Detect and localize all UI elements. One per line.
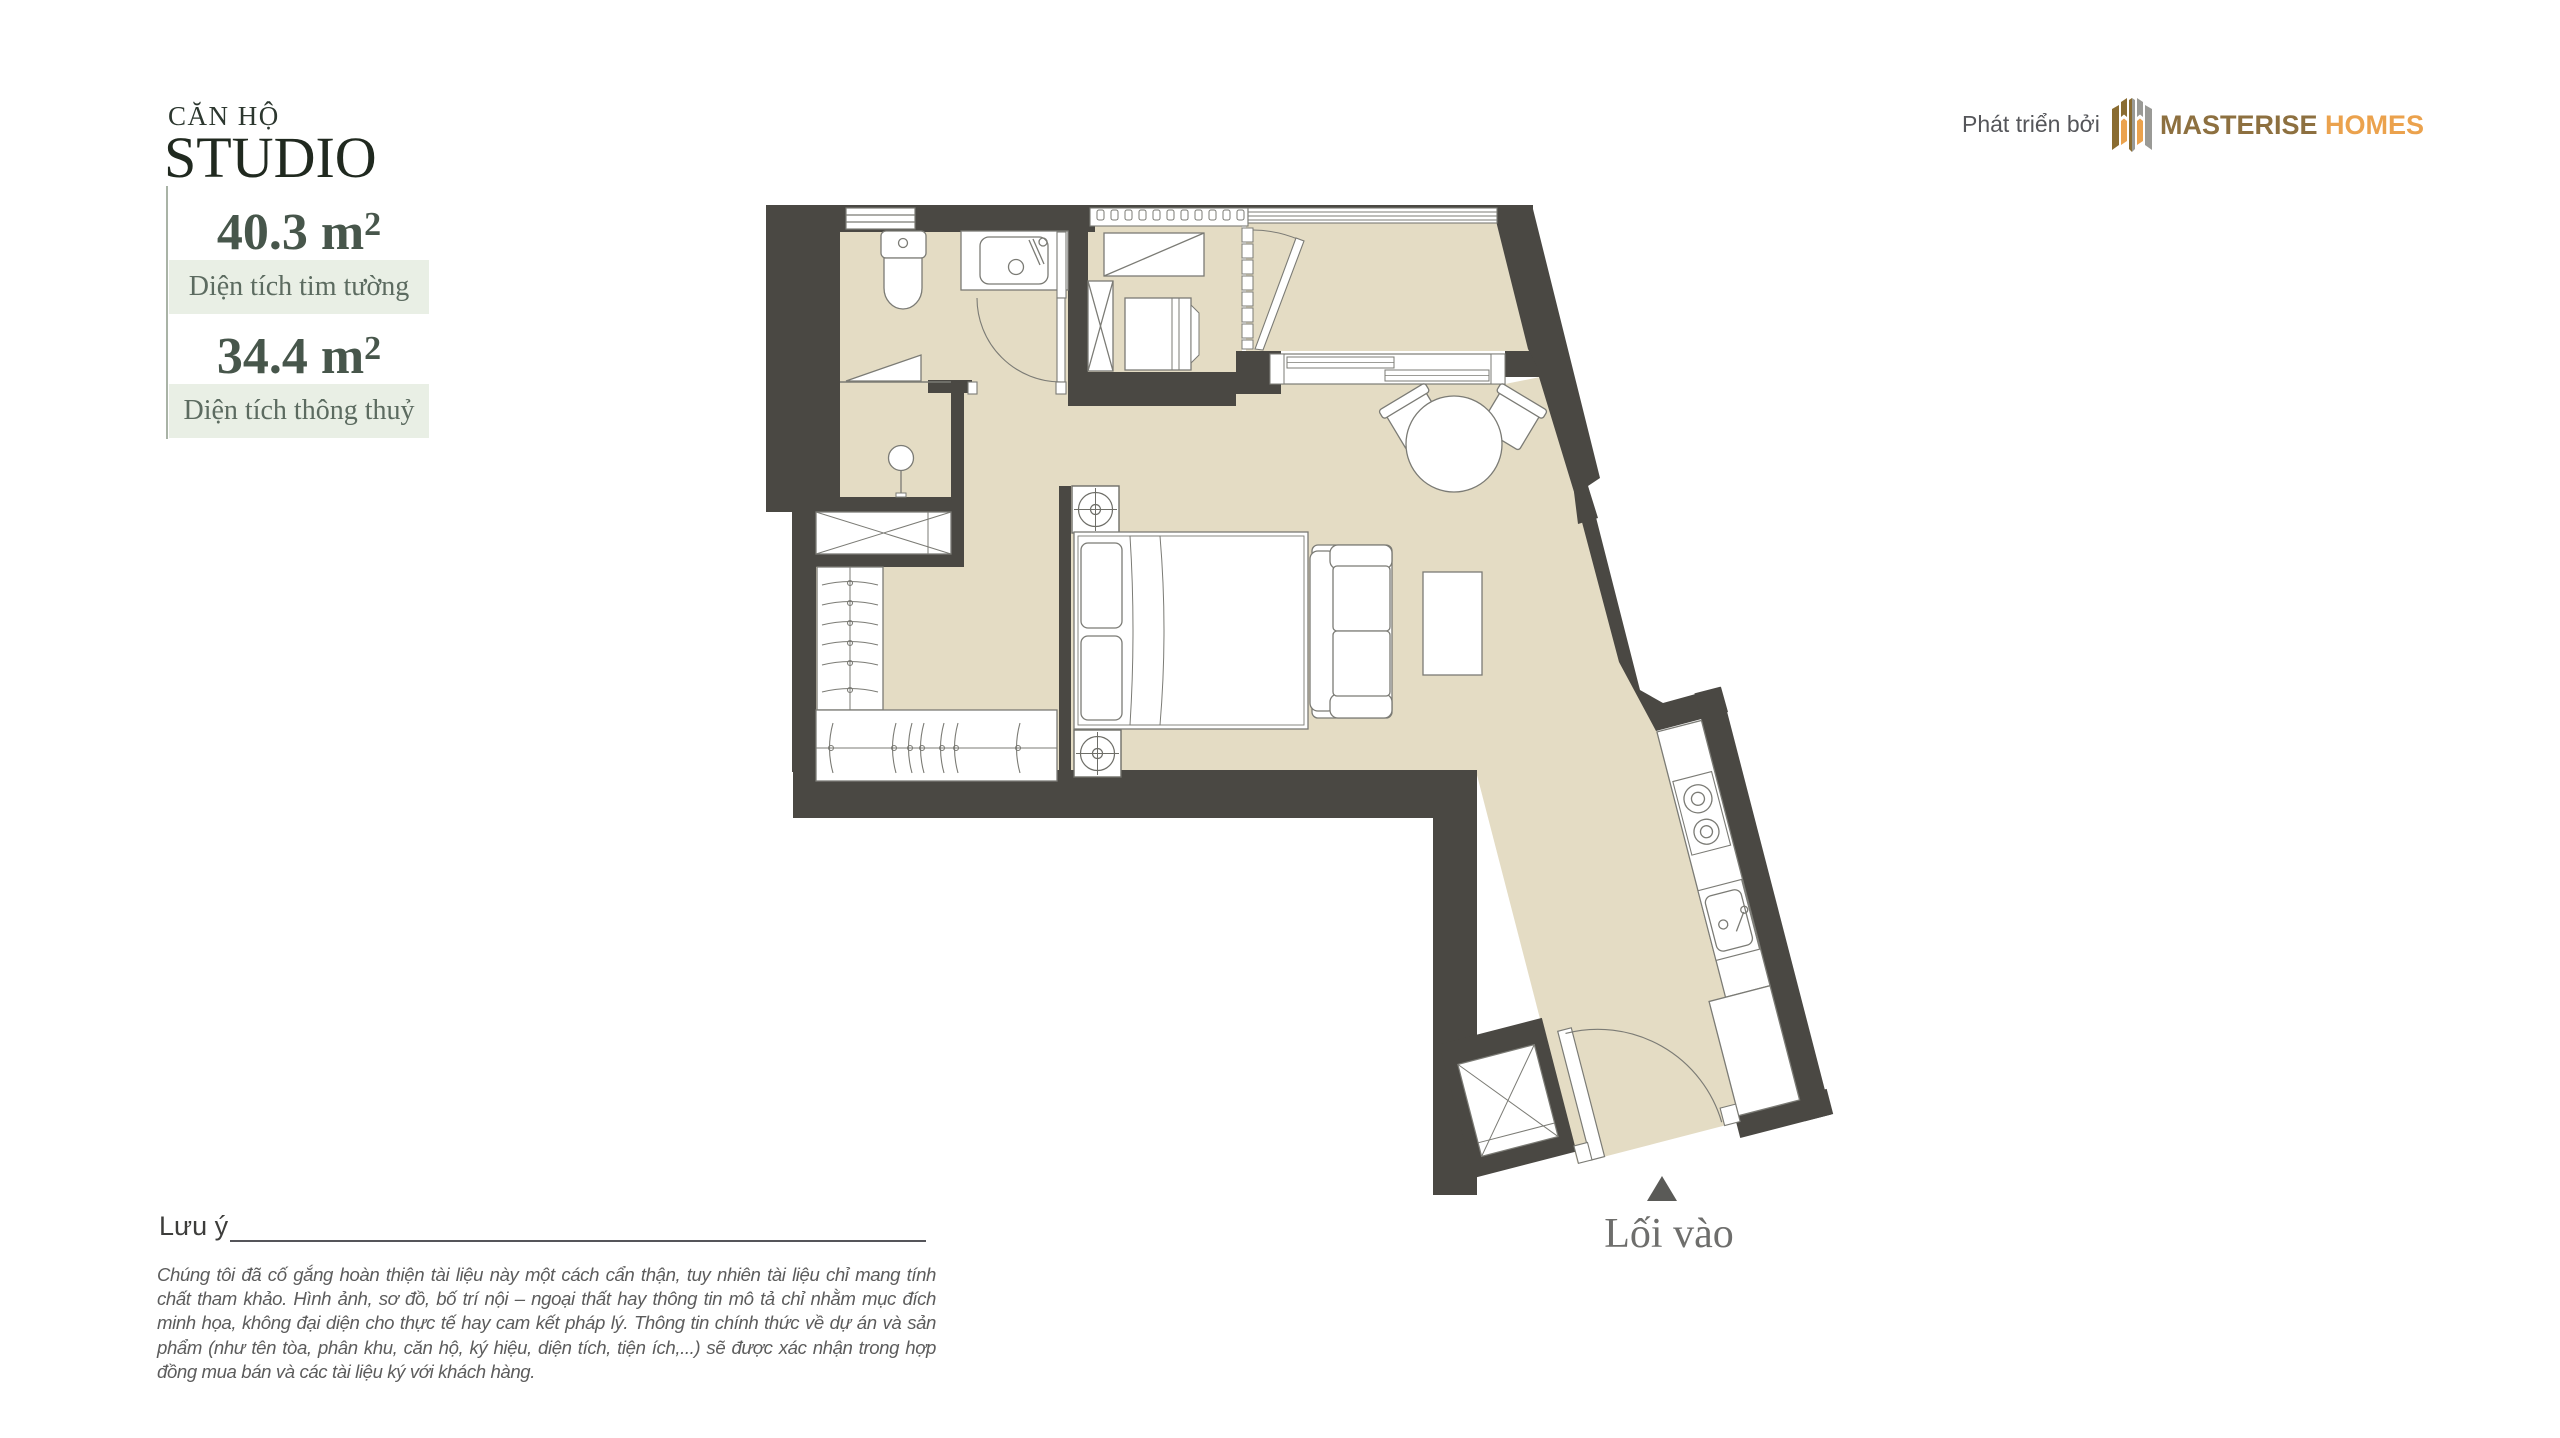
- svg-text:Lối vào: Lối vào: [1604, 1211, 1733, 1257]
